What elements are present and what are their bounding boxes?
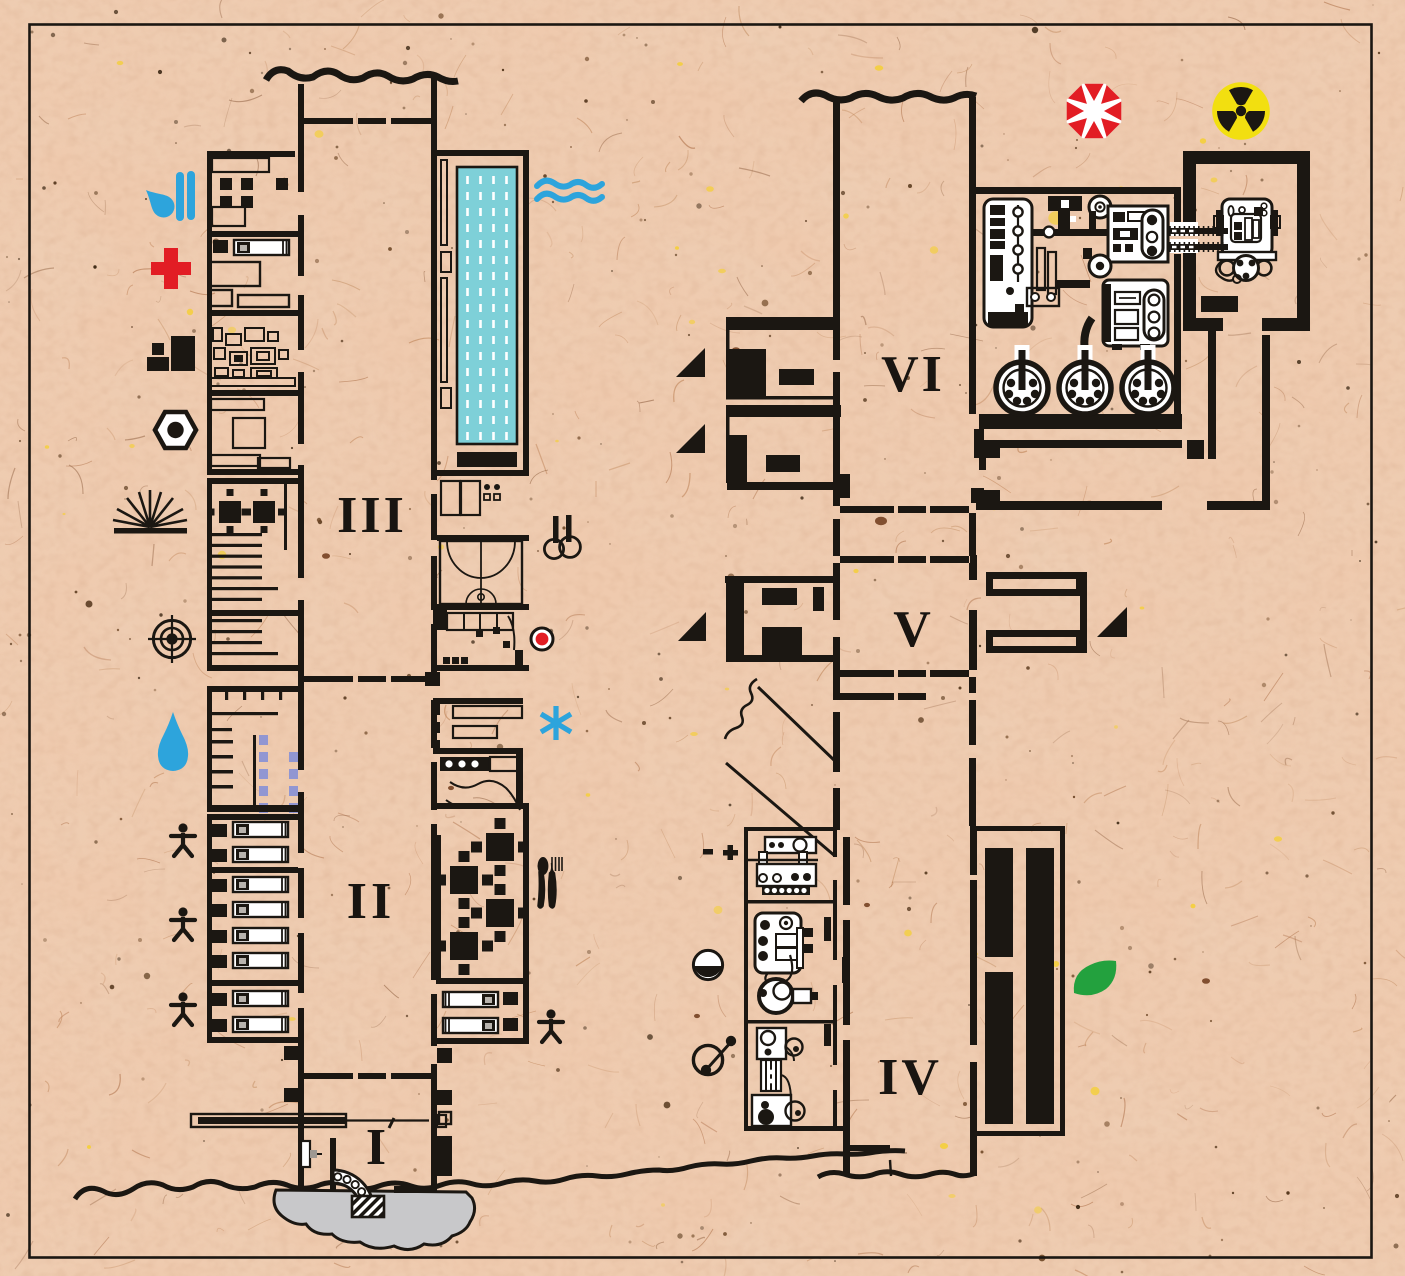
svg-text:IV: IV — [878, 1049, 942, 1106]
svg-text:I: I — [366, 1119, 386, 1176]
svg-text:III: III — [337, 487, 407, 544]
svg-text:II: II — [347, 873, 395, 930]
svg-text:V: V — [893, 601, 931, 658]
svg-text:VI: VI — [881, 346, 945, 403]
